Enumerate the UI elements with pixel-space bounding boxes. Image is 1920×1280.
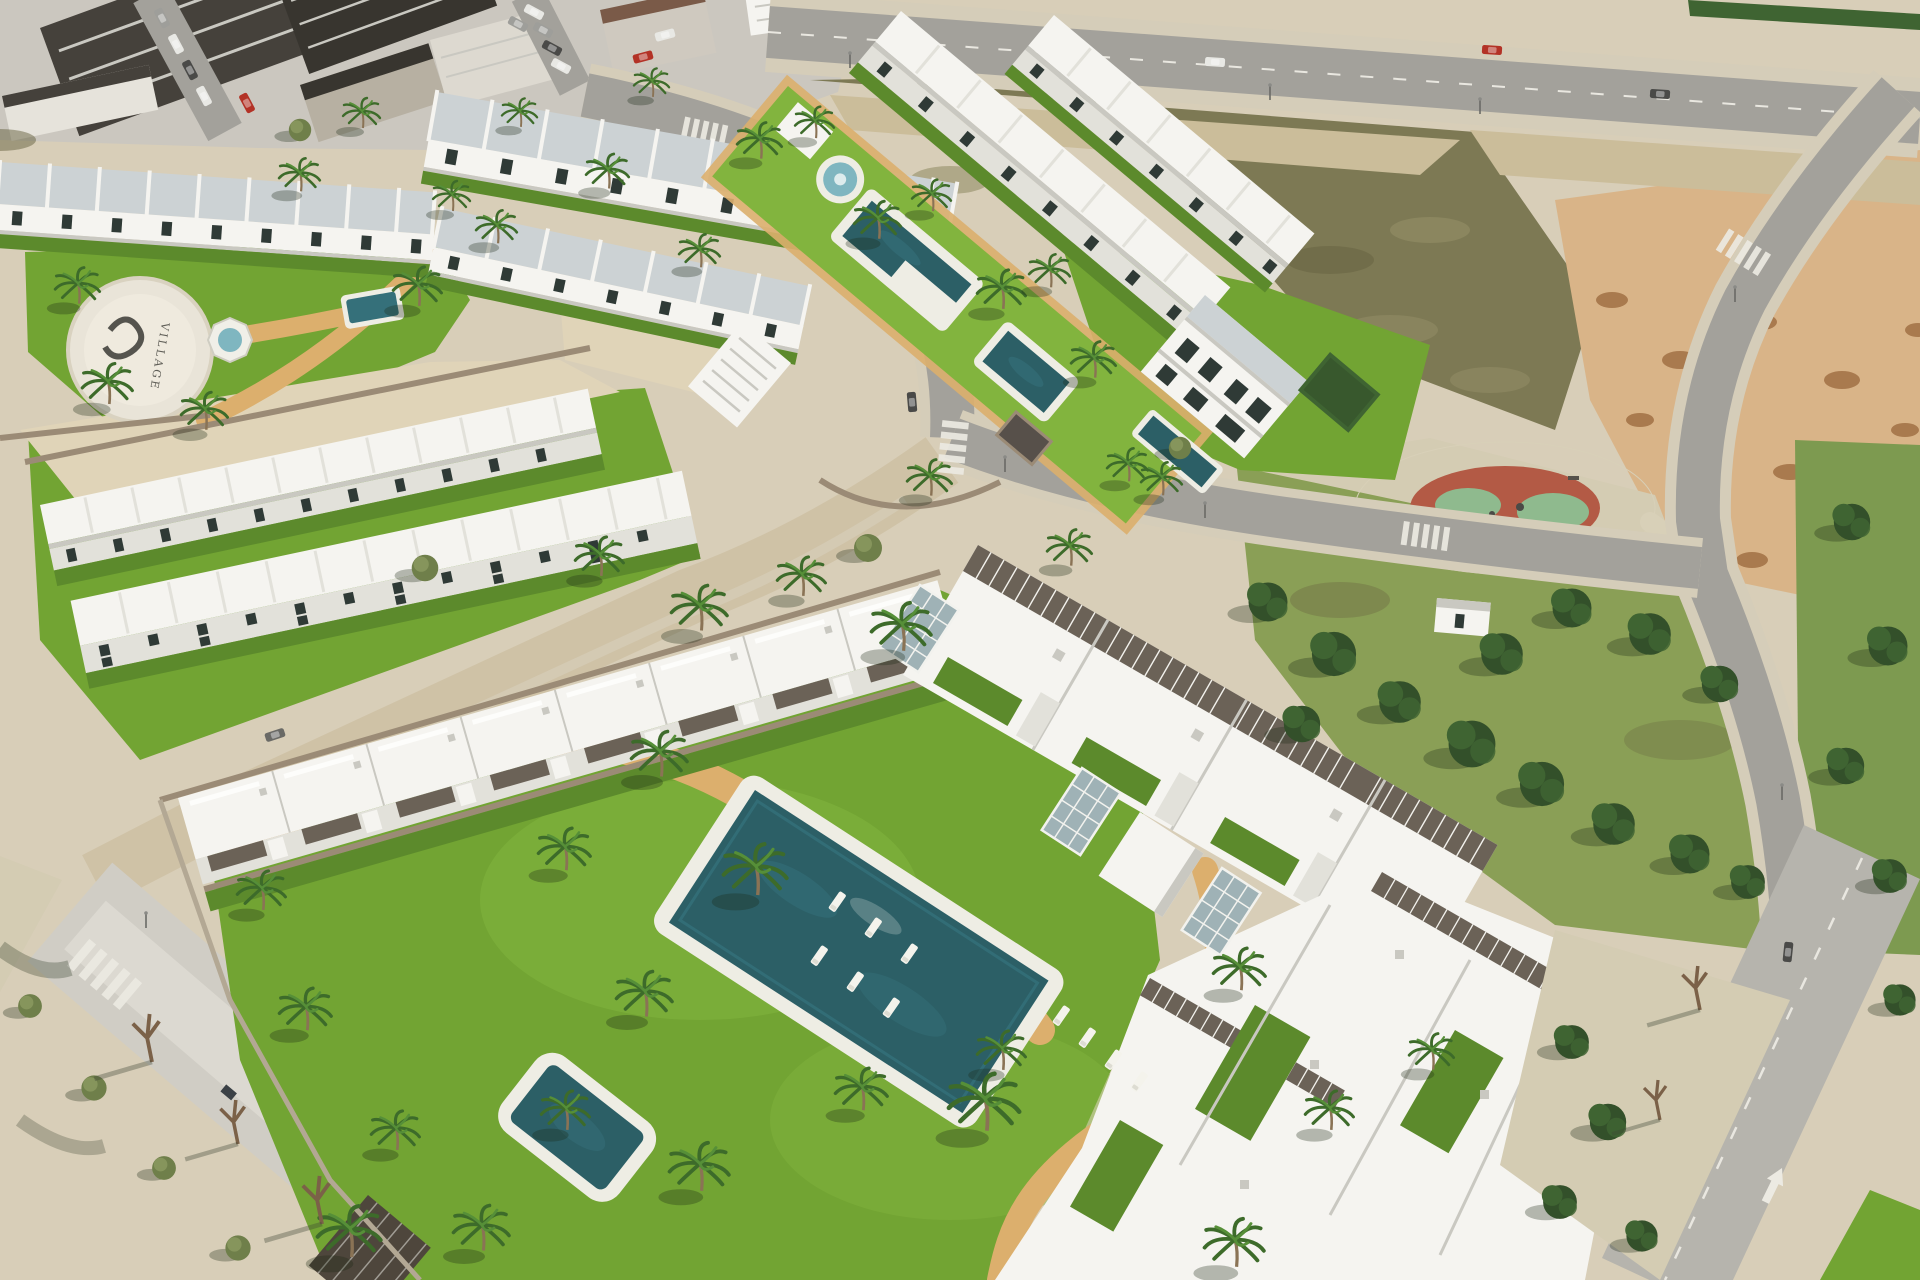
park-hut — [1434, 598, 1491, 637]
driving-car — [1205, 57, 1226, 67]
driving-car — [907, 392, 918, 413]
playground-equipment — [1516, 503, 1524, 511]
park-bench — [1568, 476, 1579, 480]
driving-car-red — [1482, 45, 1503, 55]
aerial-render: VILLAGE — [0, 0, 1920, 1280]
aerial-render-canvas: VILLAGE — [0, 0, 1920, 1280]
driving-car — [1650, 89, 1671, 99]
garden-fountain — [208, 318, 252, 362]
